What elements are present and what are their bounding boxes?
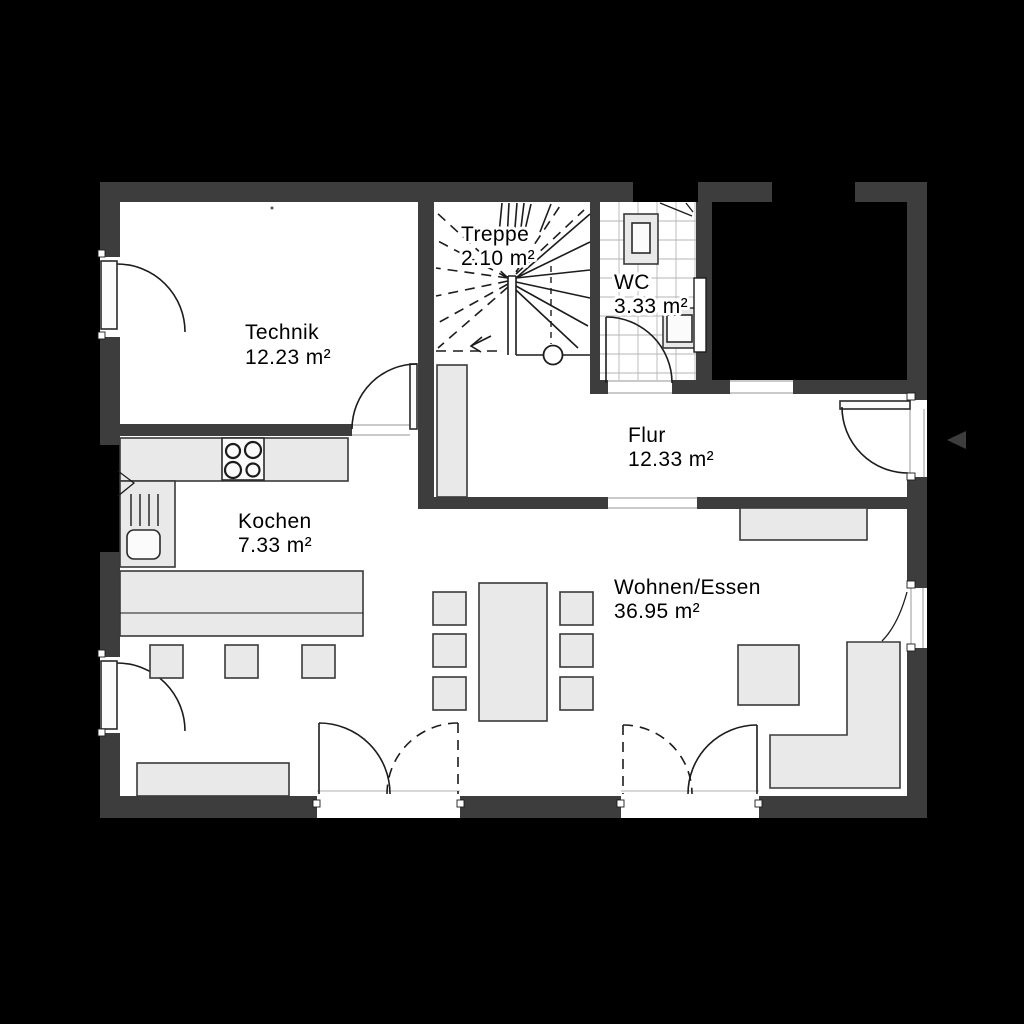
wall-flur-top-4 — [793, 380, 907, 394]
room-label-wc: WC — [614, 271, 650, 294]
wc-washbasin-bowl — [632, 223, 650, 253]
wall-technik-treppe — [418, 202, 434, 509]
room-label-kochen: Kochen — [238, 510, 312, 533]
wall-right-2 — [907, 477, 927, 588]
opening-terrace-door-1 — [317, 796, 460, 818]
dining-chair — [433, 592, 466, 625]
wc-toilet-bowl — [667, 315, 692, 342]
room-area-kochen: 7.33 m² — [238, 534, 312, 557]
kitchen-island — [120, 571, 363, 636]
plan-dot-marker — [271, 207, 274, 210]
opening-terrace-door-2 — [621, 796, 759, 818]
wall-left-1 — [100, 182, 120, 257]
door-leaf — [101, 661, 117, 729]
room-label-treppe: Treppe — [461, 223, 529, 246]
door-leaf — [840, 401, 910, 409]
room-area-wohnen-essen: 36.95 m² — [614, 600, 700, 623]
wall-treppe-wc — [590, 202, 600, 394]
dining-chair — [560, 677, 593, 710]
hall-wardrobe — [437, 365, 467, 497]
wall-top-1 — [100, 182, 633, 202]
opening-right-window — [907, 588, 927, 648]
coffee-table — [738, 645, 799, 705]
floor-plan-canvas: Technik 12.23 m² Treppe 2.10 m² WC 3.33 … — [0, 0, 1024, 1024]
door-leaf — [410, 364, 417, 429]
room-label-technik: Technik — [245, 321, 319, 344]
wall-flur-top-3 — [712, 380, 730, 394]
wall-bottom-2 — [460, 796, 621, 818]
dining-chair — [433, 634, 466, 667]
wall-bottom-3 — [759, 796, 927, 818]
wall-top-2 — [698, 182, 772, 202]
dining-chair — [560, 592, 593, 625]
room-unlabeled-dark — [712, 202, 907, 380]
wall-left-3 — [100, 552, 120, 657]
bar-stool — [150, 645, 183, 678]
wall-right-1 — [907, 182, 927, 400]
room-area-flur: 12.33 m² — [628, 448, 714, 471]
wall-technik-bottom — [120, 424, 352, 436]
room-label-flur: Flur — [628, 424, 666, 447]
wall-left-2 — [100, 337, 120, 445]
room-area-treppe: 2.10 m² — [461, 247, 535, 270]
bench — [137, 763, 289, 796]
wall-flur-bottom-1 — [418, 497, 608, 509]
room-area-wc: 3.33 m² — [614, 295, 688, 318]
stair-walk-line-start — [544, 346, 563, 365]
bar-stool — [302, 645, 335, 678]
wall-bottom-1 — [100, 796, 317, 818]
wall-right-3 — [907, 648, 927, 818]
bar-stool — [225, 645, 258, 678]
dining-chair — [560, 634, 593, 667]
opening-dark-room — [730, 380, 793, 394]
room-area-technik: 12.23 m² — [245, 346, 331, 369]
door-leaf — [101, 261, 117, 329]
dining-chair — [433, 677, 466, 710]
flur-sideboard — [740, 508, 867, 540]
wc-radiator — [694, 278, 706, 352]
wall-flur-top-2 — [672, 380, 696, 394]
floor-plan-svg: Technik 12.23 m² Treppe 2.10 m² WC 3.33 … — [0, 0, 1024, 1024]
kitchen-sink — [127, 530, 160, 559]
room-label-wohnen-essen: Wohnen/Essen — [614, 576, 761, 599]
dining-table — [479, 583, 547, 721]
